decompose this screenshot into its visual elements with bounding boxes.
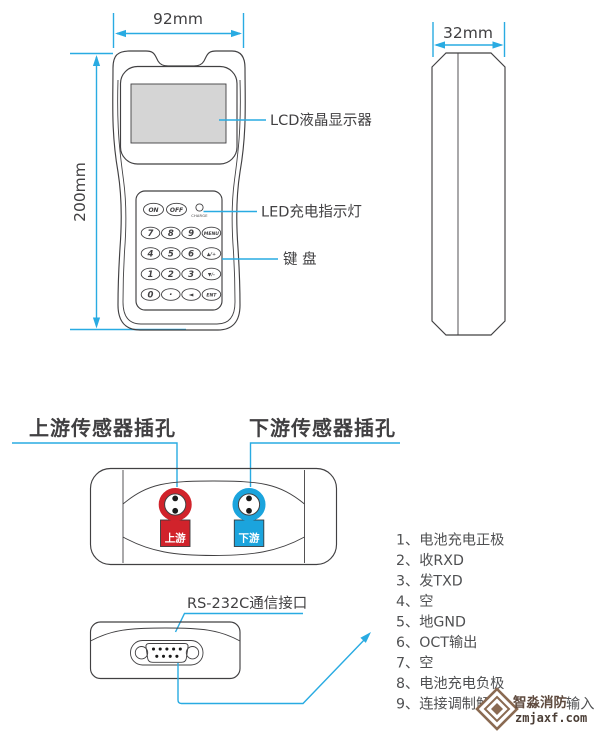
manual-diagram-page: 92mm 200mm ON OFF CHARGE 7 8 9	[0, 0, 600, 732]
rs232-callout: RS-232C通信接口	[187, 595, 307, 612]
key-7-label: 7	[148, 229, 154, 239]
downstream-tag-label: 下游	[239, 532, 260, 545]
pin-row: 7、空	[396, 656, 433, 672]
bottom-view: RS-232C通信接口	[91, 595, 372, 704]
diagram-canvas: 92mm 200mm ON OFF CHARGE 7 8 9	[0, 0, 600, 732]
pinout-list: 1、电池充电正极 2、收RXD 3、发TXD 4、空 5、地GND 6、OCT输…	[396, 533, 594, 713]
key-on-label: ON	[148, 207, 158, 214]
pin-row: 2、收RXD	[396, 553, 464, 569]
key-0-label: 0	[148, 291, 154, 301]
key-down-minus-label: ▼/-	[208, 272, 215, 278]
bottom-body-contour	[91, 628, 241, 641]
bottom-body-outline	[91, 622, 241, 679]
arrowhead-up	[93, 55, 100, 66]
front-width-dimension: 92mm	[153, 10, 203, 28]
top-view: 上游传感器插孔 下游传感器插孔 上游 下游	[12, 416, 400, 565]
charge-led-label: CHARGE	[191, 214, 208, 218]
led-callout: LED充电指示灯	[261, 204, 362, 221]
key-3-label: 3	[188, 270, 194, 280]
arrowhead-right	[231, 30, 242, 37]
pin-row: 8、电池充电负极	[396, 676, 504, 692]
arrowhead-left	[115, 30, 126, 37]
upstream-leader-line	[12, 443, 177, 487]
key-backspace-label: ◄	[189, 292, 194, 299]
downstream-socket-callout: 下游传感器插孔	[249, 416, 396, 440]
key-1-label: 1	[148, 270, 154, 280]
db9-pins	[152, 647, 182, 657]
top-body-lower-contour	[123, 537, 305, 556]
upstream-pin-bottom	[172, 508, 178, 514]
upstream-socket-callout: 上游传感器插孔	[29, 416, 176, 440]
key-5-label: 5	[168, 250, 174, 260]
side-width-dimension: 32mm	[443, 24, 493, 42]
watermark-brand: 智淼消防	[513, 694, 567, 711]
pinout-pointer-line	[178, 638, 366, 704]
pin-row-9-head: 9、连接调制解	[396, 696, 490, 713]
watermark-site: zmjaxf.com	[515, 711, 587, 725]
key-8-label: 8	[168, 229, 174, 239]
pin-row: 6、OCT输出	[396, 635, 477, 651]
upstream-pin-top	[172, 496, 178, 502]
key-6-label: 6	[188, 250, 194, 260]
lcd-screen	[131, 84, 226, 143]
db9-shell	[131, 641, 204, 666]
pin-row: 4、空	[396, 594, 433, 610]
key-off-label: OFF	[170, 207, 184, 214]
side-arrowhead-left	[434, 41, 445, 48]
key-up-plus-label: ▲/+	[207, 251, 216, 257]
upstream-tag-label: 上游	[165, 532, 186, 545]
pin-row: 5、地GND	[396, 615, 466, 631]
pin-row: 3、发TXD	[396, 574, 463, 590]
arrowhead-down	[93, 318, 100, 329]
key-4-label: 4	[147, 250, 154, 260]
side-view: 32mm	[432, 22, 505, 335]
key-2-label: 2	[168, 270, 174, 280]
lcd-callout: LCD液晶显示器	[270, 112, 372, 129]
keyboard-callout: 键 盘	[283, 250, 317, 268]
db9-connector-body	[146, 644, 188, 663]
key-9-label: 9	[188, 229, 194, 239]
charge-led	[196, 204, 203, 211]
downstream-pin-top	[246, 496, 252, 502]
top-body-outline	[91, 469, 337, 565]
key-menu-label: MENU	[204, 231, 220, 237]
side-body-outline	[432, 53, 505, 335]
front-view: 92mm 200mm ON OFF CHARGE 7 8 9	[70, 10, 372, 330]
downstream-leader-line	[251, 443, 401, 487]
top-body-upper-contour	[123, 481, 305, 504]
side-arrowhead-right	[493, 41, 504, 48]
key-dot-label: ·	[169, 291, 172, 301]
pin-row: 1、电池充电正极	[396, 533, 504, 549]
watermark-logo-icon	[477, 689, 517, 729]
key-ent-label: ENT	[206, 292, 217, 298]
front-height-dimension: 200mm	[71, 162, 89, 222]
downstream-pin-bottom	[246, 508, 252, 514]
